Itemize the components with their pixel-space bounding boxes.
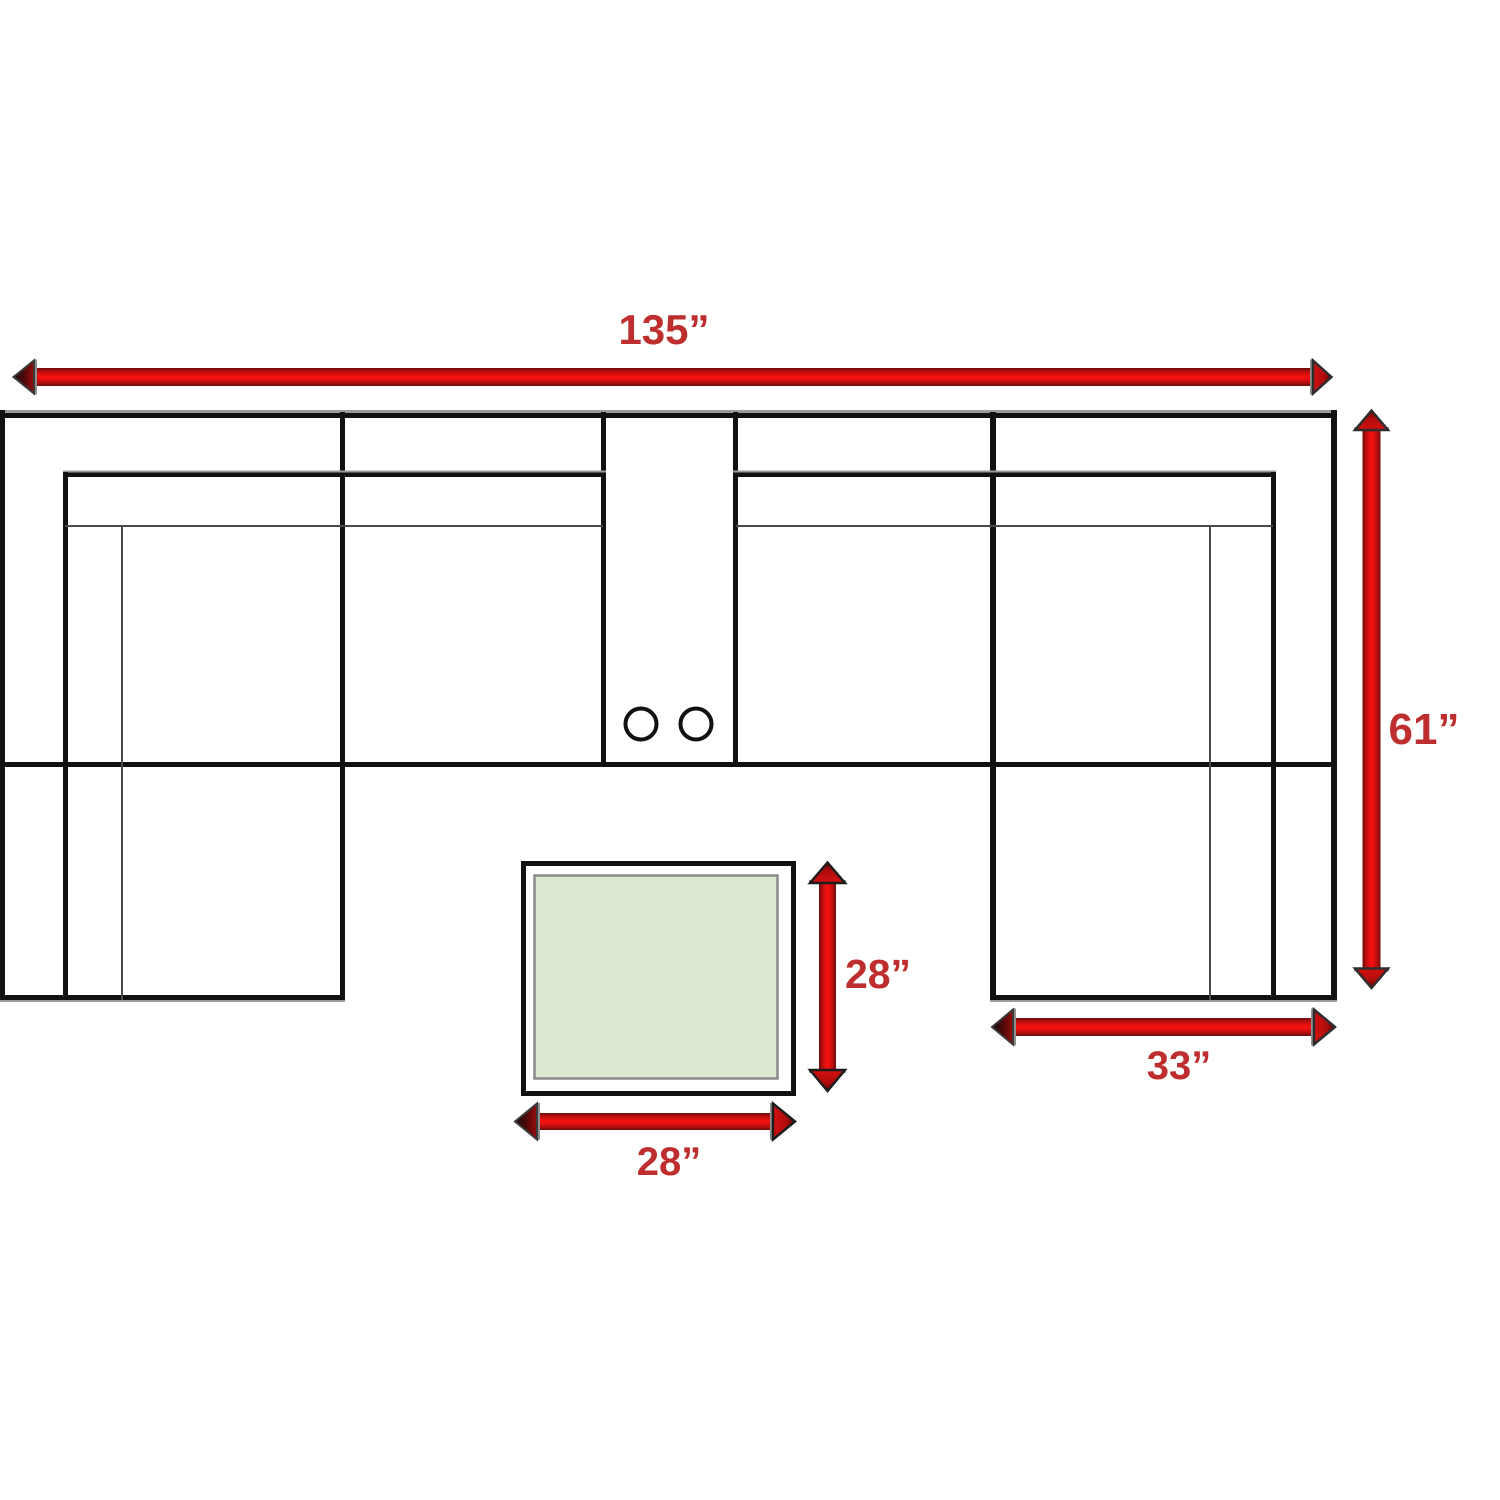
svg-text:135”: 135” [618,306,709,353]
svg-text:28”: 28” [845,951,911,997]
svg-text:33”: 33” [1147,1044,1212,1088]
svg-text:61”: 61” [1389,705,1460,754]
svg-text:28”: 28” [637,1140,702,1184]
